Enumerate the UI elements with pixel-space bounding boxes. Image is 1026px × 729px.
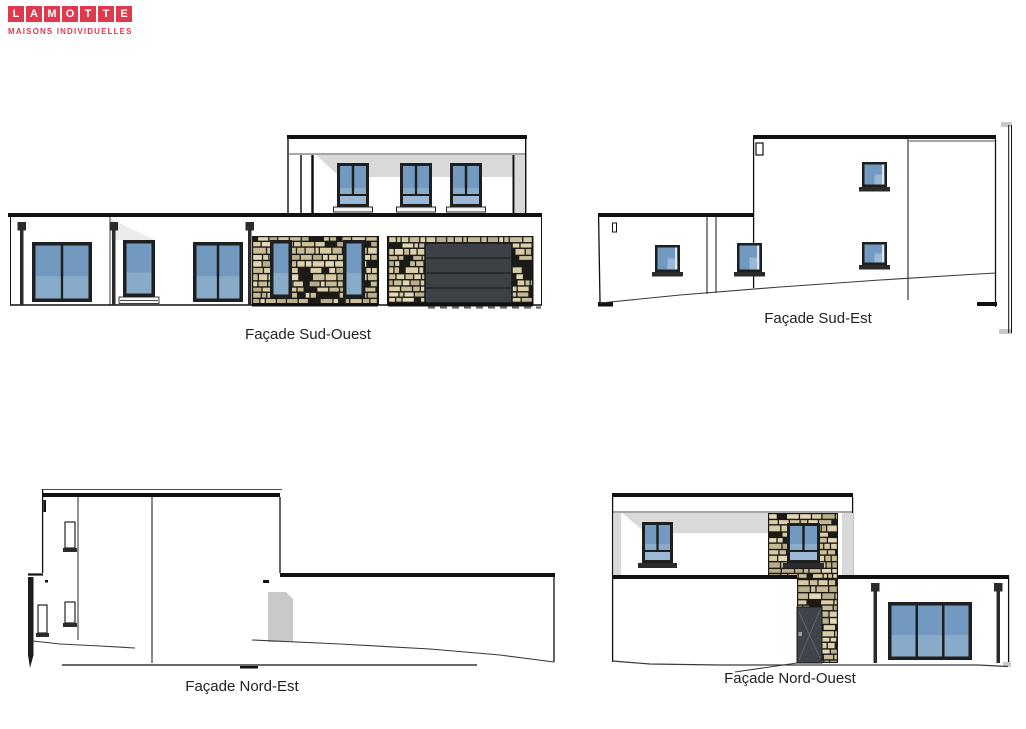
sliding-window — [193, 242, 243, 302]
facade-label-nord-est: Façade Nord-Est — [112, 678, 372, 696]
triple-window — [888, 602, 972, 660]
downspout — [18, 222, 27, 305]
entry-door — [797, 607, 822, 663]
square-window — [859, 242, 890, 270]
facade-nord-est-drawing — [28, 489, 555, 669]
double-window — [638, 522, 677, 568]
downspout — [871, 583, 880, 663]
facade-label-sud-ouest: Façade Sud-Ouest — [178, 326, 438, 344]
boundary-pole — [999, 122, 1012, 334]
double-window — [783, 523, 824, 568]
narrow-window — [63, 602, 77, 627]
facade-label-sud-est: Façade Sud-Est — [688, 310, 948, 328]
garage-door — [425, 243, 512, 303]
facade-nord-ouest-drawing — [612, 493, 1011, 672]
downspout — [994, 583, 1003, 663]
facade-label-nord-ouest: Façade Nord-Ouest — [660, 670, 920, 688]
tall-window — [343, 240, 365, 298]
square-window — [734, 243, 765, 277]
facade-sud-ouest-drawing — [8, 135, 542, 308]
square-window — [859, 162, 890, 192]
tall-window — [270, 240, 292, 298]
double-window — [447, 163, 486, 212]
facade-sud-est-drawing — [598, 122, 1012, 334]
double-window — [334, 163, 373, 212]
sliding-window — [32, 242, 92, 302]
glazed-door — [123, 240, 155, 297]
double-window — [397, 163, 436, 212]
narrow-window — [63, 522, 77, 552]
facade-drawings — [0, 0, 1026, 729]
blueprint-page: LAMOTTE MAISONS INDIVIDUELLES Façade Sud… — [0, 0, 1026, 729]
square-window — [652, 245, 683, 277]
narrow-window — [36, 605, 49, 637]
